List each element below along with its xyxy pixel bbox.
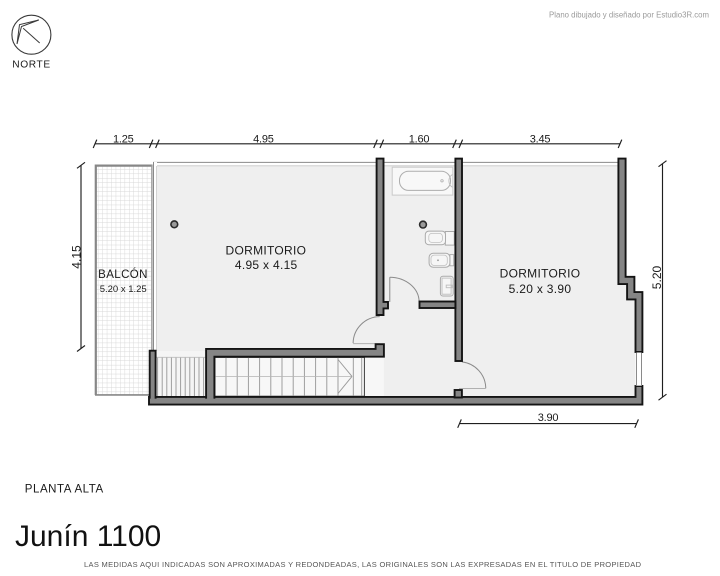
svg-text:Plano dibujado y diseñado por: Plano dibujado y diseñado por Estudio3R.… (549, 10, 709, 19)
svg-text:DORMITORIO: DORMITORIO (500, 267, 581, 281)
svg-text:4.95: 4.95 (253, 134, 274, 146)
svg-text:PLANTA ALTA: PLANTA ALTA (25, 484, 104, 496)
svg-text:5.20 x 3.90: 5.20 x 3.90 (509, 282, 572, 296)
svg-text:BALCÓN: BALCÓN (98, 268, 148, 281)
svg-text:Junín 1100: Junín 1100 (15, 520, 161, 553)
svg-text:1.60: 1.60 (409, 134, 430, 146)
svg-text:3.90: 3.90 (538, 412, 559, 424)
svg-text:5.20 x 1.25: 5.20 x 1.25 (100, 284, 147, 295)
svg-text:3.45: 3.45 (530, 134, 551, 146)
svg-text:1.25: 1.25 (113, 134, 134, 146)
svg-text:4.95 x 4.15: 4.95 x 4.15 (235, 258, 298, 272)
svg-text:LAS MEDIDAS AQUI INDICADAS SON: LAS MEDIDAS AQUI INDICADAS SON APROXIMAD… (84, 560, 642, 569)
svg-text:DORMITORIO: DORMITORIO (226, 244, 307, 258)
svg-text:NORTE: NORTE (12, 60, 50, 71)
svg-text:4.15: 4.15 (70, 245, 84, 269)
svg-text:5.20: 5.20 (650, 265, 664, 289)
